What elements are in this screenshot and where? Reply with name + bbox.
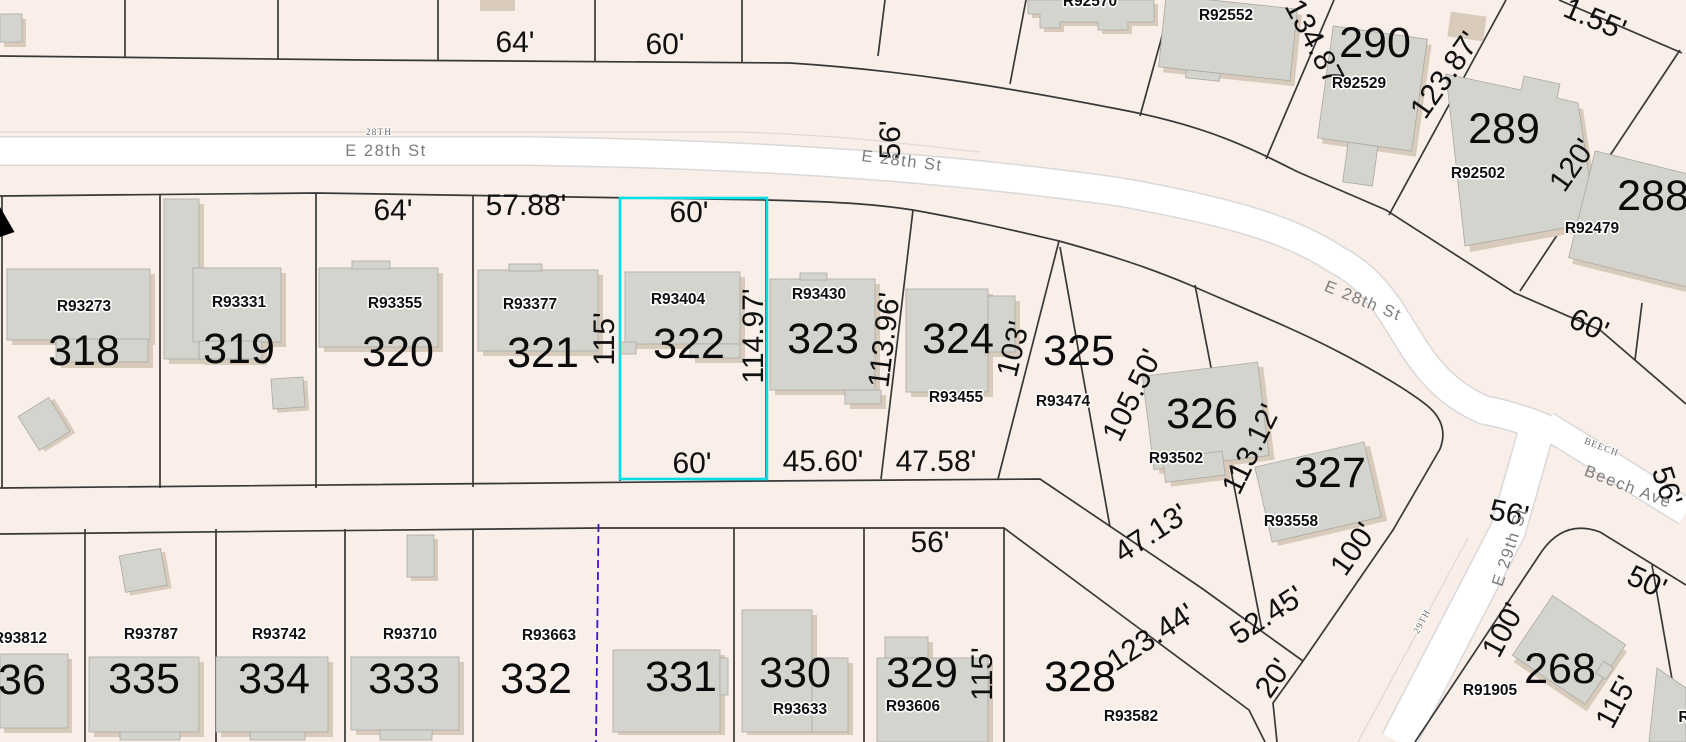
svg-text:326: 326 xyxy=(1166,390,1238,438)
svg-text:E 28th St: E 28th St xyxy=(345,142,426,160)
svg-text:R93787: R93787 xyxy=(124,626,178,643)
svg-text:115': 115' xyxy=(588,312,621,366)
svg-text:324: 324 xyxy=(922,315,994,363)
svg-text:R93273: R93273 xyxy=(57,298,112,315)
svg-text:114.97': 114.97' xyxy=(737,288,770,383)
svg-text:320: 320 xyxy=(362,328,434,376)
svg-text:R93582: R93582 xyxy=(1104,708,1158,725)
svg-text:334: 334 xyxy=(238,655,310,703)
svg-text:332: 332 xyxy=(500,655,572,703)
svg-text:336: 336 xyxy=(0,656,46,704)
svg-text:R93606: R93606 xyxy=(886,698,941,715)
svg-text:64': 64' xyxy=(495,26,534,59)
svg-text:60': 60' xyxy=(672,447,711,480)
svg-text:64': 64' xyxy=(373,194,412,227)
svg-text:R92529: R92529 xyxy=(1332,75,1387,92)
svg-text:60': 60' xyxy=(669,196,708,229)
svg-text:R92552: R92552 xyxy=(1199,7,1253,24)
svg-text:R93355: R93355 xyxy=(368,295,423,312)
svg-text:327: 327 xyxy=(1294,449,1366,497)
svg-text:328: 328 xyxy=(1044,653,1116,701)
svg-text:331: 331 xyxy=(645,653,717,701)
svg-text:47.58': 47.58' xyxy=(896,445,977,478)
svg-text:319: 319 xyxy=(203,325,275,373)
svg-text:60': 60' xyxy=(645,28,684,61)
svg-text:288: 288 xyxy=(1617,172,1686,220)
svg-text:28TH: 28TH xyxy=(366,128,392,138)
svg-text:333: 333 xyxy=(368,655,440,703)
svg-text:R93710: R93710 xyxy=(383,626,437,643)
svg-text:R92570: R92570 xyxy=(1063,0,1117,10)
svg-text:R93474: R93474 xyxy=(1036,393,1091,410)
svg-text:330: 330 xyxy=(759,649,831,697)
svg-text:R93742: R93742 xyxy=(252,626,306,643)
svg-text:56': 56' xyxy=(910,526,949,559)
svg-text:322: 322 xyxy=(653,320,725,368)
svg-text:R92502: R92502 xyxy=(1451,165,1505,182)
svg-text:R93377: R93377 xyxy=(503,296,557,313)
svg-text:R93502: R93502 xyxy=(1149,450,1203,467)
svg-text:R93558: R93558 xyxy=(1264,513,1319,530)
svg-text:R93331: R93331 xyxy=(212,294,267,311)
svg-text:R92479: R92479 xyxy=(1565,220,1620,237)
svg-text:323: 323 xyxy=(787,315,859,363)
svg-text:115': 115' xyxy=(966,647,999,701)
svg-text:318: 318 xyxy=(48,327,120,375)
svg-text:57.88': 57.88' xyxy=(486,189,567,222)
svg-text:289: 289 xyxy=(1468,105,1540,153)
svg-text:290: 290 xyxy=(1339,19,1411,67)
svg-text:R93455: R93455 xyxy=(929,389,984,406)
svg-text:325: 325 xyxy=(1043,327,1115,375)
svg-text:R93663: R93663 xyxy=(522,627,577,644)
svg-text:R93404: R93404 xyxy=(651,291,706,308)
svg-text:R93812: R93812 xyxy=(0,630,47,647)
svg-text:R93633: R93633 xyxy=(773,701,828,718)
svg-text:268: 268 xyxy=(1524,645,1596,693)
svg-text:R: R xyxy=(1678,709,1686,726)
svg-text:335: 335 xyxy=(108,655,180,703)
svg-text:R93430: R93430 xyxy=(792,286,846,303)
svg-text:329: 329 xyxy=(886,649,958,697)
svg-text:45.60': 45.60' xyxy=(783,445,864,478)
svg-text:321: 321 xyxy=(507,329,579,377)
svg-text:R91905: R91905 xyxy=(1463,682,1518,699)
